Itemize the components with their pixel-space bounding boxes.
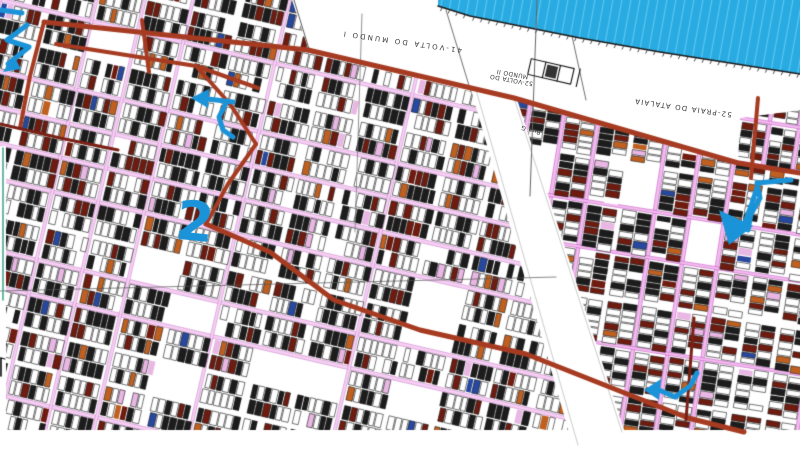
city-map-canvas[interactable] [0,0,800,449]
map-viewport: 41-VOLTA DO MUNDO I 52-VOLTA DO MUNDO II… [0,0,800,449]
